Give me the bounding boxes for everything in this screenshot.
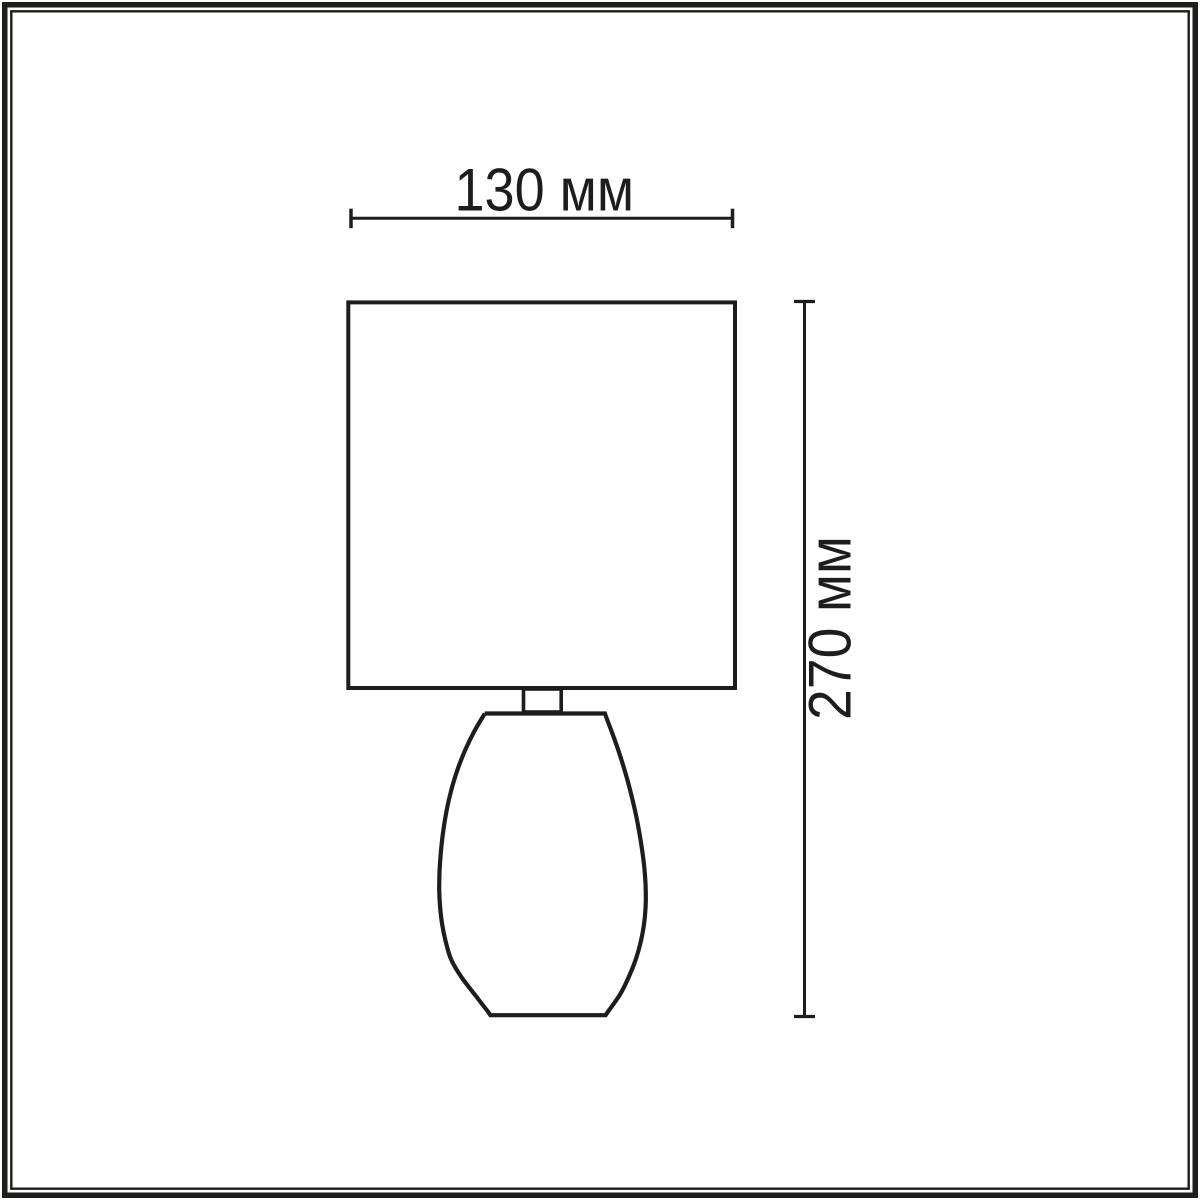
svg-text:270 мм: 270 мм — [797, 536, 864, 720]
svg-text:130 мм: 130 мм — [455, 156, 635, 223]
